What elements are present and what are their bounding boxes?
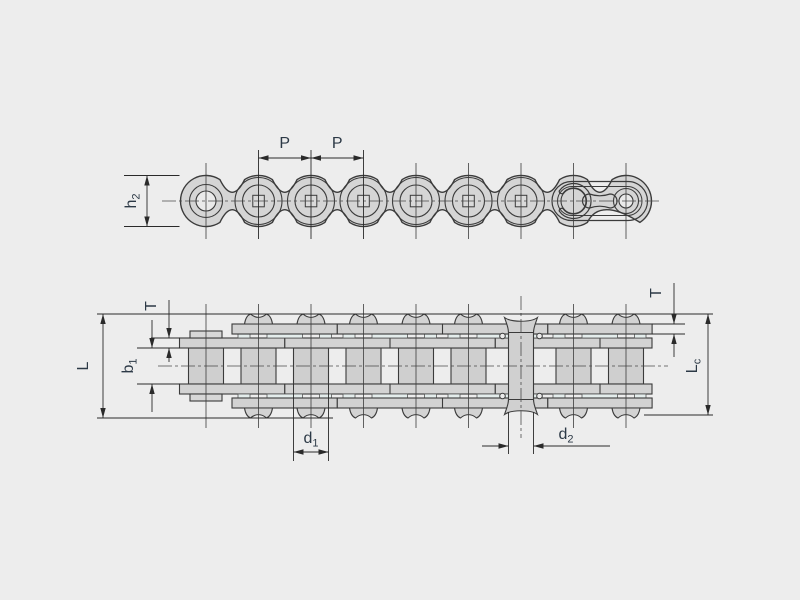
gap-strip (448, 394, 460, 398)
clip-wire (500, 393, 506, 399)
gap-strip (343, 394, 355, 398)
gap-strip (477, 334, 513, 338)
inner-plate (180, 338, 285, 348)
inner-plate (285, 384, 390, 394)
outer-plate (337, 324, 442, 334)
gap-strip (320, 394, 332, 398)
gap-strip (343, 334, 355, 338)
inner-plate (180, 384, 285, 394)
gap-strip (425, 394, 437, 398)
label-L: L (75, 361, 92, 370)
gap-strip (582, 334, 618, 338)
gap-strip (553, 394, 565, 398)
inner-plate (390, 384, 495, 394)
roller-chain-drawing: P P h2 L b1 T T Lc d1 d2 (0, 0, 800, 600)
inner-plate (390, 338, 495, 348)
gap-strip (425, 334, 437, 338)
inner-plate (285, 338, 390, 348)
gap-strip (448, 334, 460, 338)
gap-strip (320, 334, 332, 338)
label-T-right: T (648, 288, 665, 298)
label-pitch-1: P (279, 135, 290, 152)
gap-strip (582, 394, 618, 398)
canvas-background (0, 0, 800, 600)
outer-plate (232, 324, 337, 334)
gap-strip (372, 394, 408, 398)
gap-strip (477, 394, 513, 398)
gap-strip (267, 334, 303, 338)
outer-plate (232, 398, 337, 408)
gap-strip (238, 334, 250, 338)
gap-strip (372, 334, 408, 338)
label-pitch-2: P (332, 135, 343, 152)
label-T-left: T (143, 301, 160, 311)
outer-plate (548, 324, 652, 334)
gap-strip (635, 394, 647, 398)
outer-plate (337, 398, 442, 408)
gap-strip (553, 334, 565, 338)
clip-wire (537, 393, 543, 399)
gap-strip (635, 334, 647, 338)
outer-plate (548, 398, 652, 408)
clip-wire (500, 333, 506, 339)
gap-strip (238, 394, 250, 398)
clip-wire (537, 333, 543, 339)
gap-strip (267, 394, 303, 398)
